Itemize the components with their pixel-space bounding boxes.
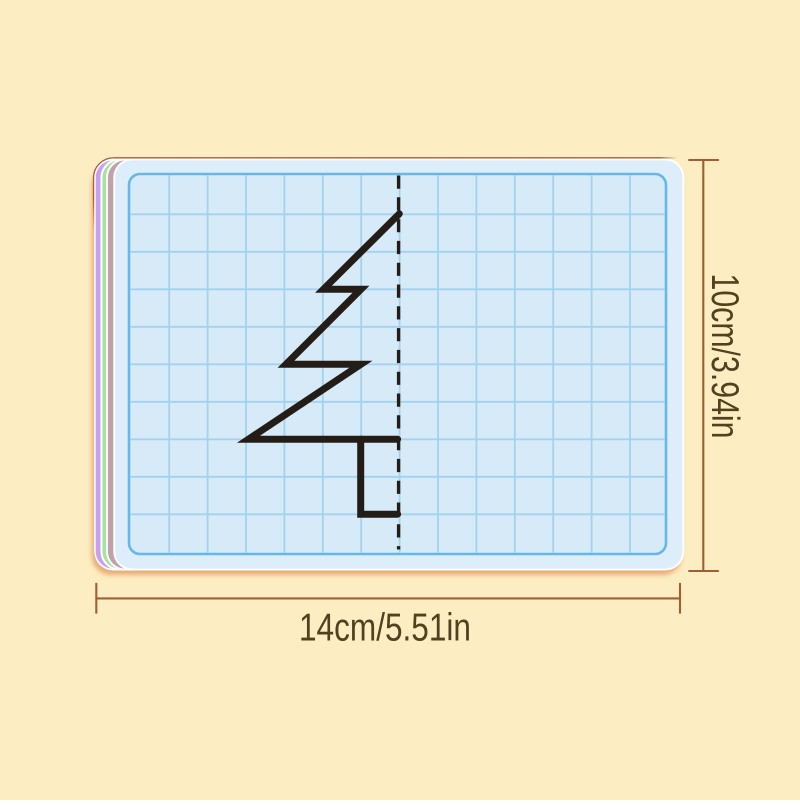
- svg-text:14cm/5.51in: 14cm/5.51in: [299, 607, 471, 650]
- svg-text:10cm/3.94in: 10cm/3.94in: [703, 274, 746, 439]
